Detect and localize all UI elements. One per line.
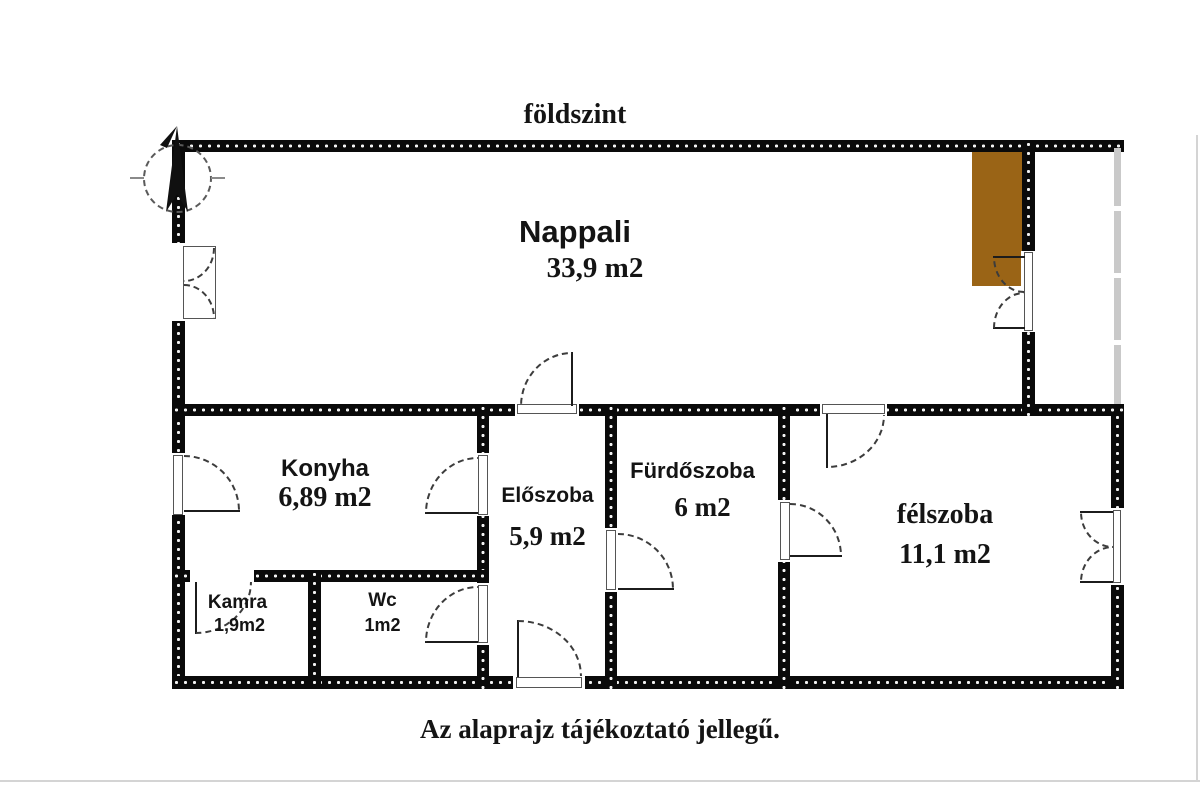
door-swing-arc [184, 455, 240, 511]
wall-middle-horizontal [172, 404, 1123, 416]
window-swing-arc [184, 248, 215, 282]
entrance-door-sill [516, 677, 582, 688]
terrace-glazing-segment [1114, 211, 1121, 273]
room-area-nappali: 33,9 m2 [475, 253, 715, 283]
door-swing-arc [993, 292, 1024, 328]
terrace-glazing-segment [1114, 345, 1121, 404]
room-label-wc: Wc [330, 591, 435, 611]
window-swing-arc [184, 284, 215, 318]
door-swing-arc [790, 503, 842, 556]
door-swing-arc [993, 257, 1024, 293]
entrance-door-swing-arc [518, 620, 582, 676]
window-swing-arc [1080, 546, 1113, 582]
north-arrow-icon [138, 108, 218, 223]
room-area-furdoszoba: 6 m2 [620, 493, 785, 521]
window-sill [1113, 510, 1121, 583]
wall-top-exterior [178, 140, 1124, 152]
door-swing-arc [520, 352, 572, 406]
terrace-glazing-segment [1114, 278, 1121, 340]
terrace-glazing-segment [1114, 148, 1121, 206]
scan-edge-bottom [0, 780, 1200, 782]
room-label-nappali: Nappali [455, 216, 695, 249]
room-label-kamra: Kamra [180, 593, 295, 613]
room-area-kamra: 1,9m2 [182, 616, 297, 635]
room-label-felszoba: félszoba [840, 500, 1050, 529]
floor-plan: földszint Nappali 33,9 m2 Konyha 6,89 m2… [0, 0, 1200, 785]
room-label-konyha: Konyha [240, 456, 410, 481]
room-area-felszoba: 11,1 m2 [840, 540, 1050, 569]
scan-edge-right [1196, 135, 1198, 782]
door-sill [173, 455, 183, 515]
room-label-furdoszoba: Fürdőszoba [610, 459, 775, 482]
room-area-wc: 1m2 [330, 616, 435, 635]
door-sill [478, 585, 488, 643]
plan-title: földszint [440, 100, 710, 129]
room-area-eloszoba: 5,9 m2 [455, 522, 640, 550]
window-swing-arc [1080, 512, 1113, 548]
wall-kamra-wc [308, 570, 321, 689]
room-label-eloszoba: Előszoba [455, 485, 640, 507]
door-sill [1024, 252, 1033, 331]
room-area-konyha: 6,89 m2 [240, 483, 410, 512]
door-sill [822, 404, 885, 414]
door-swing-arc [827, 415, 885, 468]
disclaimer-note: Az alaprajz tájékoztató jellegű. [0, 715, 1200, 743]
